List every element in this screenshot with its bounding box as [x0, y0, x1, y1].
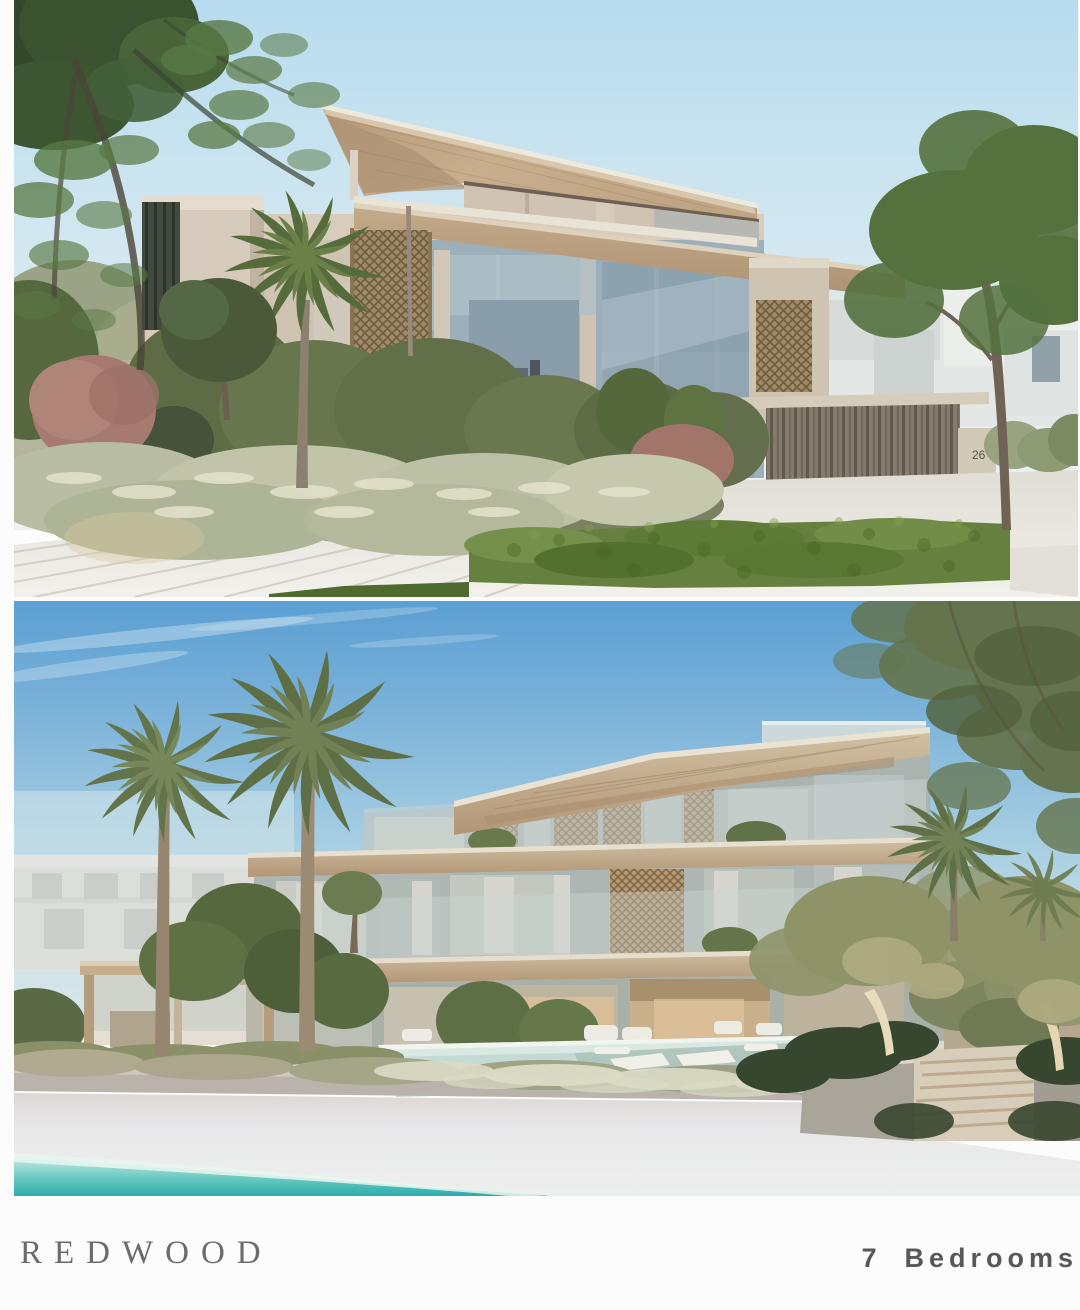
svg-text:26: 26 [972, 448, 986, 462]
